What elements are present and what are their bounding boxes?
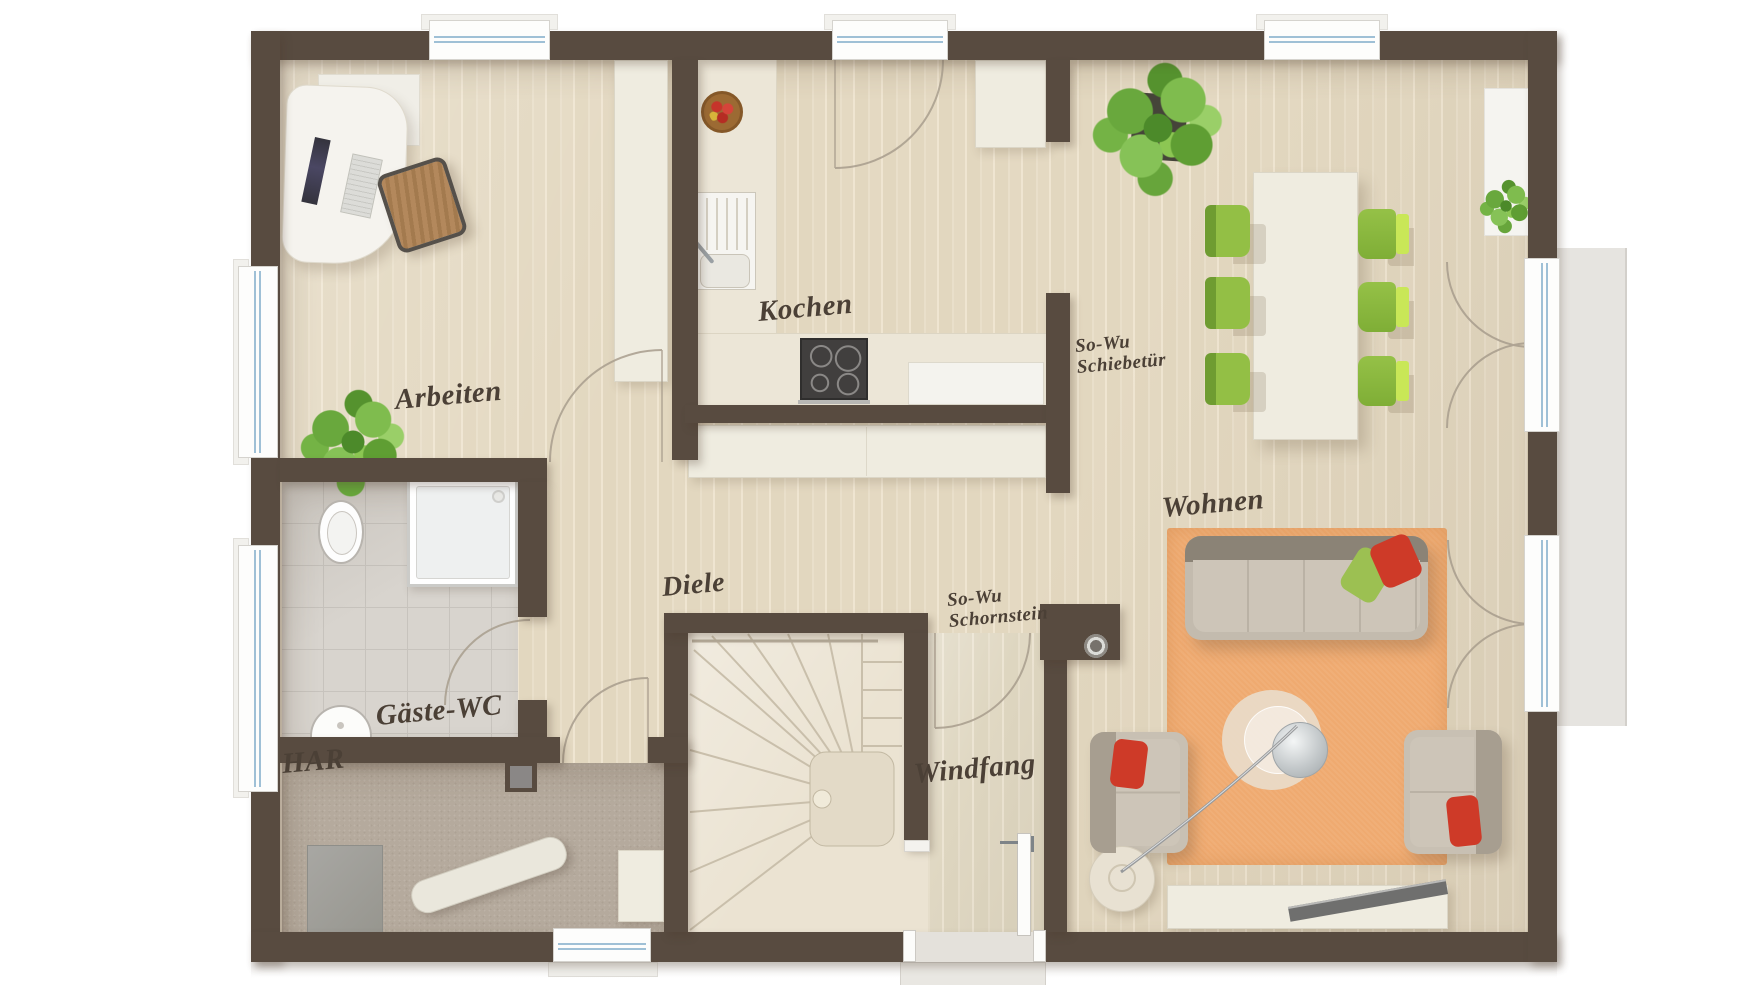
stair-door-jamb (904, 840, 930, 852)
dining-chair-highlight (1396, 214, 1409, 254)
window-wc-left (238, 545, 278, 792)
annotation-sliding-door: So-Wu Schiebetür (1074, 328, 1167, 378)
wall-wc-right-stub (518, 700, 547, 737)
wall-kitchen-bottom (685, 405, 1047, 423)
wall-windfang-living (1044, 613, 1067, 932)
wall-sliding-door-mid (1046, 293, 1070, 493)
terrace (1557, 248, 1627, 726)
entrance-jamb (1033, 930, 1046, 962)
entrance-door-leaf (1017, 833, 1031, 936)
french-door-lower (1524, 535, 1560, 712)
study-cabinet (614, 60, 668, 382)
wc-sink-drain (337, 722, 344, 729)
wall-har-top-piece (648, 737, 688, 763)
armchair-left-back (1090, 732, 1116, 853)
lamp-sphere (1272, 722, 1328, 778)
side-table-detail (1108, 864, 1136, 892)
dining-plant (1088, 58, 1228, 198)
toilet-inner (327, 511, 357, 555)
window-har-bottom (553, 928, 651, 962)
french-door-upper (1524, 258, 1560, 432)
dining-chair (1205, 353, 1250, 405)
kitchen-counter-appliance (908, 362, 1044, 405)
floor-plan: Arbeiten Kochen Wohnen Diele Gäste-WC HA… (0, 0, 1752, 985)
wall-stair-top (664, 613, 928, 633)
dining-chair (1205, 205, 1250, 257)
armchair-left-cushion-red (1109, 738, 1149, 790)
hall-sideboard-seam (866, 427, 867, 476)
har-crate (618, 850, 664, 922)
dining-table (1253, 172, 1358, 440)
entrance-door-handle (1000, 841, 1018, 844)
staircase-floor (688, 633, 928, 932)
room-label-har: HAR (281, 743, 346, 781)
entrance-step (900, 962, 1046, 985)
balcony-door-kitchen (832, 20, 948, 60)
wall-stair-left (664, 613, 688, 932)
dining-chair (1358, 282, 1396, 332)
sink-drainboard (698, 198, 750, 250)
dining-chair-highlight (1396, 361, 1409, 401)
wall-wc-top (280, 458, 547, 482)
window-study-left (238, 266, 278, 458)
dining-chair-highlight (1396, 287, 1409, 327)
wall-wc-right-upper (518, 482, 547, 617)
wall-stair-right (904, 633, 928, 848)
duct-inner (510, 766, 532, 788)
window-dining-top (1264, 20, 1380, 60)
har-storage-box (307, 845, 383, 933)
entrance-door-handle (1031, 836, 1034, 852)
dining-chair (1205, 277, 1250, 329)
corner-plant (1478, 178, 1534, 234)
annotation-chimney: So-Wu Schornstein (946, 581, 1049, 632)
kitchen-tall-cabinet (975, 60, 1046, 148)
chimney-vent (1082, 632, 1110, 660)
wall-exterior-right (1528, 31, 1557, 962)
window-study-top (429, 20, 550, 60)
fruit-apples (709, 99, 735, 125)
armchair-right-cushion-red (1445, 794, 1482, 847)
stove-cooktop (800, 338, 868, 400)
room-label-diele: Diele (661, 567, 727, 604)
wall-sliding-door-upper (1046, 60, 1070, 142)
entrance-threshold (905, 932, 1038, 962)
wall-exterior-left (251, 31, 280, 962)
hall-sideboard (688, 425, 1046, 478)
shower-drain (492, 490, 505, 503)
entrance-jamb (903, 930, 916, 962)
har-window-sill-outside (548, 962, 658, 977)
dining-chair (1358, 209, 1396, 259)
dining-chair (1358, 356, 1396, 406)
stove-front-trim (798, 400, 870, 404)
wall-study-kitchen (672, 60, 698, 460)
